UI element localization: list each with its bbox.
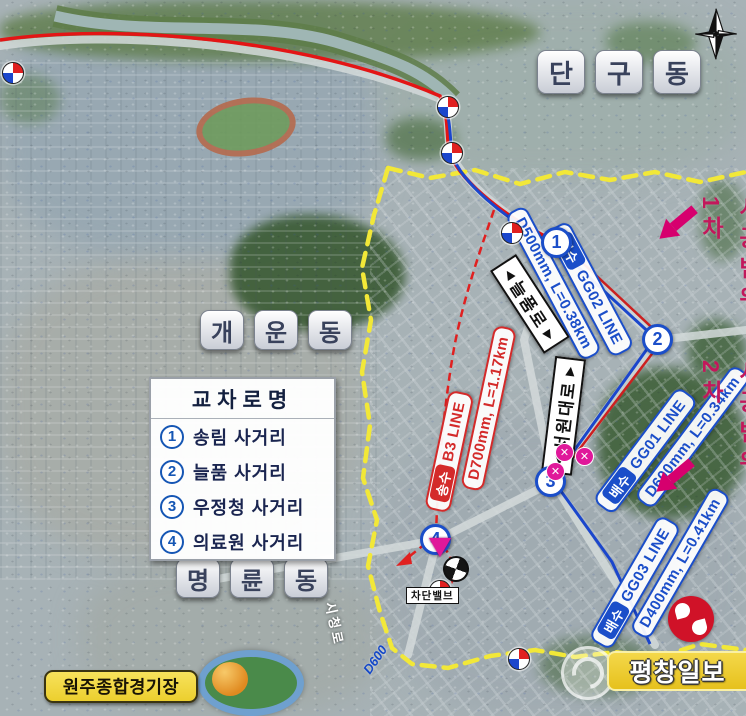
watermark-band: 평창일보 (607, 651, 746, 691)
flag-symbol-icon (429, 538, 451, 557)
legend-title: 교차로명 (151, 379, 334, 419)
signal-symbol-icon (2, 62, 24, 84)
phase-text: 시공범위 (731, 196, 746, 316)
road-arrow-icon: ▶ (561, 366, 576, 377)
legend-number-badge: 4 (160, 530, 184, 554)
district-label-gaeun: 개 운 동 (200, 310, 352, 350)
phase-note-1: 1차 시공범위 (694, 196, 746, 316)
district-label-dangu: 단 구 동 (537, 50, 701, 94)
signal-symbol-icon (437, 96, 459, 118)
district-char: 동 (308, 310, 352, 350)
legend-number-badge: 3 (160, 495, 184, 519)
legend-item: 3 우정청 사거리 (151, 489, 334, 524)
phase-note-2: 2차 시공범위 (694, 360, 746, 480)
district-char: 구 (595, 50, 643, 94)
legend-item-label: 송림 사거리 (193, 424, 287, 450)
stadium-label: 원주종합경기장 (44, 670, 198, 703)
district-char: 동 (653, 50, 701, 94)
intersection-marker-1: 1 (541, 227, 572, 258)
district-char: 명 (176, 558, 220, 598)
manhole-symbol-icon (546, 462, 565, 481)
manhole-symbol-icon (555, 443, 574, 462)
legend-item: 1 송림 사거리 (151, 419, 334, 454)
district-char: 운 (254, 310, 298, 350)
signal-symbol-icon (441, 142, 463, 164)
road-arrow-icon: ▶ (541, 327, 558, 342)
legend-item-label: 늘품 사거리 (193, 459, 287, 485)
district-char: 동 (284, 558, 328, 598)
legend-item-label: 의료원 사거리 (193, 529, 304, 555)
district-label-myeongnyun: 명 륜 동 (176, 558, 328, 598)
road-name: 서원대로 (547, 379, 580, 452)
legend-number-badge: 2 (160, 460, 184, 484)
watermark-text: 평창일보 (629, 653, 725, 689)
legend-item: 2 늘품 사거리 (151, 454, 334, 489)
manhole-symbol-icon (575, 447, 594, 466)
road-arrow-icon: ◀ (502, 266, 519, 281)
signal-symbol-icon (501, 222, 523, 244)
pipe-type-chip: 송수 (429, 464, 456, 503)
satellite-map: 배수GG02 LINE D500mm, L=0.38km 송수B3 LINE D… (0, 0, 746, 716)
valve-label: 차단밸브 (406, 587, 459, 604)
signal-symbol-icon (508, 648, 530, 670)
phase-prefix: 2차 (694, 360, 728, 480)
legend-item: 4 의료원 사거리 (151, 524, 334, 559)
intersection-marker-2: 2 (642, 324, 673, 355)
legend-item-label: 우정청 사거리 (193, 494, 304, 520)
intersection-legend: 교차로명 1 송림 사거리 2 늘품 사거리 3 우정청 사거리 4 의료원 사… (149, 377, 336, 561)
district-char: 개 (200, 310, 244, 350)
legend-number-badge: 1 (160, 425, 184, 449)
taegeuk-emblem-icon (668, 596, 714, 642)
phase-text: 시공범위 (731, 360, 746, 480)
district-char: 륜 (230, 558, 274, 598)
district-char: 단 (537, 50, 585, 94)
